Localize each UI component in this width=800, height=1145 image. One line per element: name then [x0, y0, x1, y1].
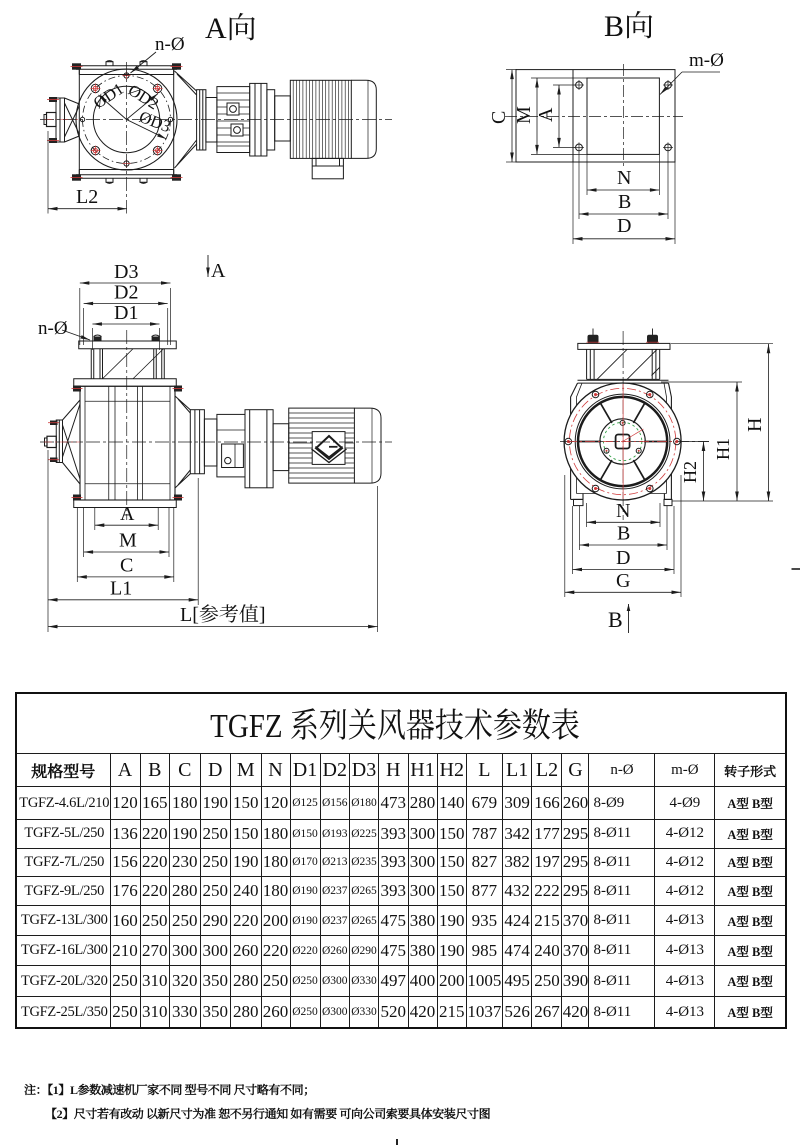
svg-text:L[参考值]: L[参考值] — [180, 604, 266, 626]
svg-text:C: C — [120, 555, 133, 577]
svg-text:L1: L1 — [110, 578, 132, 600]
svg-text:H: H — [744, 418, 766, 432]
svg-text:L2: L2 — [76, 186, 98, 208]
svg-text:B: B — [617, 523, 630, 545]
svg-text:ØD3: ØD3 — [137, 107, 174, 136]
svg-text:M: M — [119, 530, 137, 552]
svg-text:n-Ø: n-Ø — [38, 318, 68, 339]
svg-text:B: B — [608, 607, 623, 632]
svg-text:N: N — [616, 500, 630, 522]
svg-text:M: M — [513, 106, 535, 124]
svg-text:A: A — [120, 503, 135, 525]
svg-text:B向: B向 — [604, 10, 654, 43]
svg-text:A向: A向 — [205, 12, 257, 45]
svg-text:D1: D1 — [114, 302, 138, 324]
svg-text:A: A — [211, 260, 226, 282]
svg-text:H1: H1 — [713, 438, 733, 460]
svg-text:D2: D2 — [114, 282, 138, 304]
svg-text:H2: H2 — [680, 461, 700, 483]
svg-text:D: D — [616, 547, 630, 569]
svg-text:N: N — [617, 167, 631, 189]
svg-text:G: G — [616, 570, 630, 592]
svg-text:n-Ø: n-Ø — [155, 34, 185, 55]
svg-text:A: A — [535, 107, 557, 122]
svg-text:m-Ø: m-Ø — [689, 50, 724, 71]
svg-text:D3: D3 — [114, 261, 138, 283]
svg-text:B: B — [618, 191, 631, 213]
svg-text:C: C — [488, 111, 510, 124]
svg-text:D: D — [617, 215, 631, 237]
